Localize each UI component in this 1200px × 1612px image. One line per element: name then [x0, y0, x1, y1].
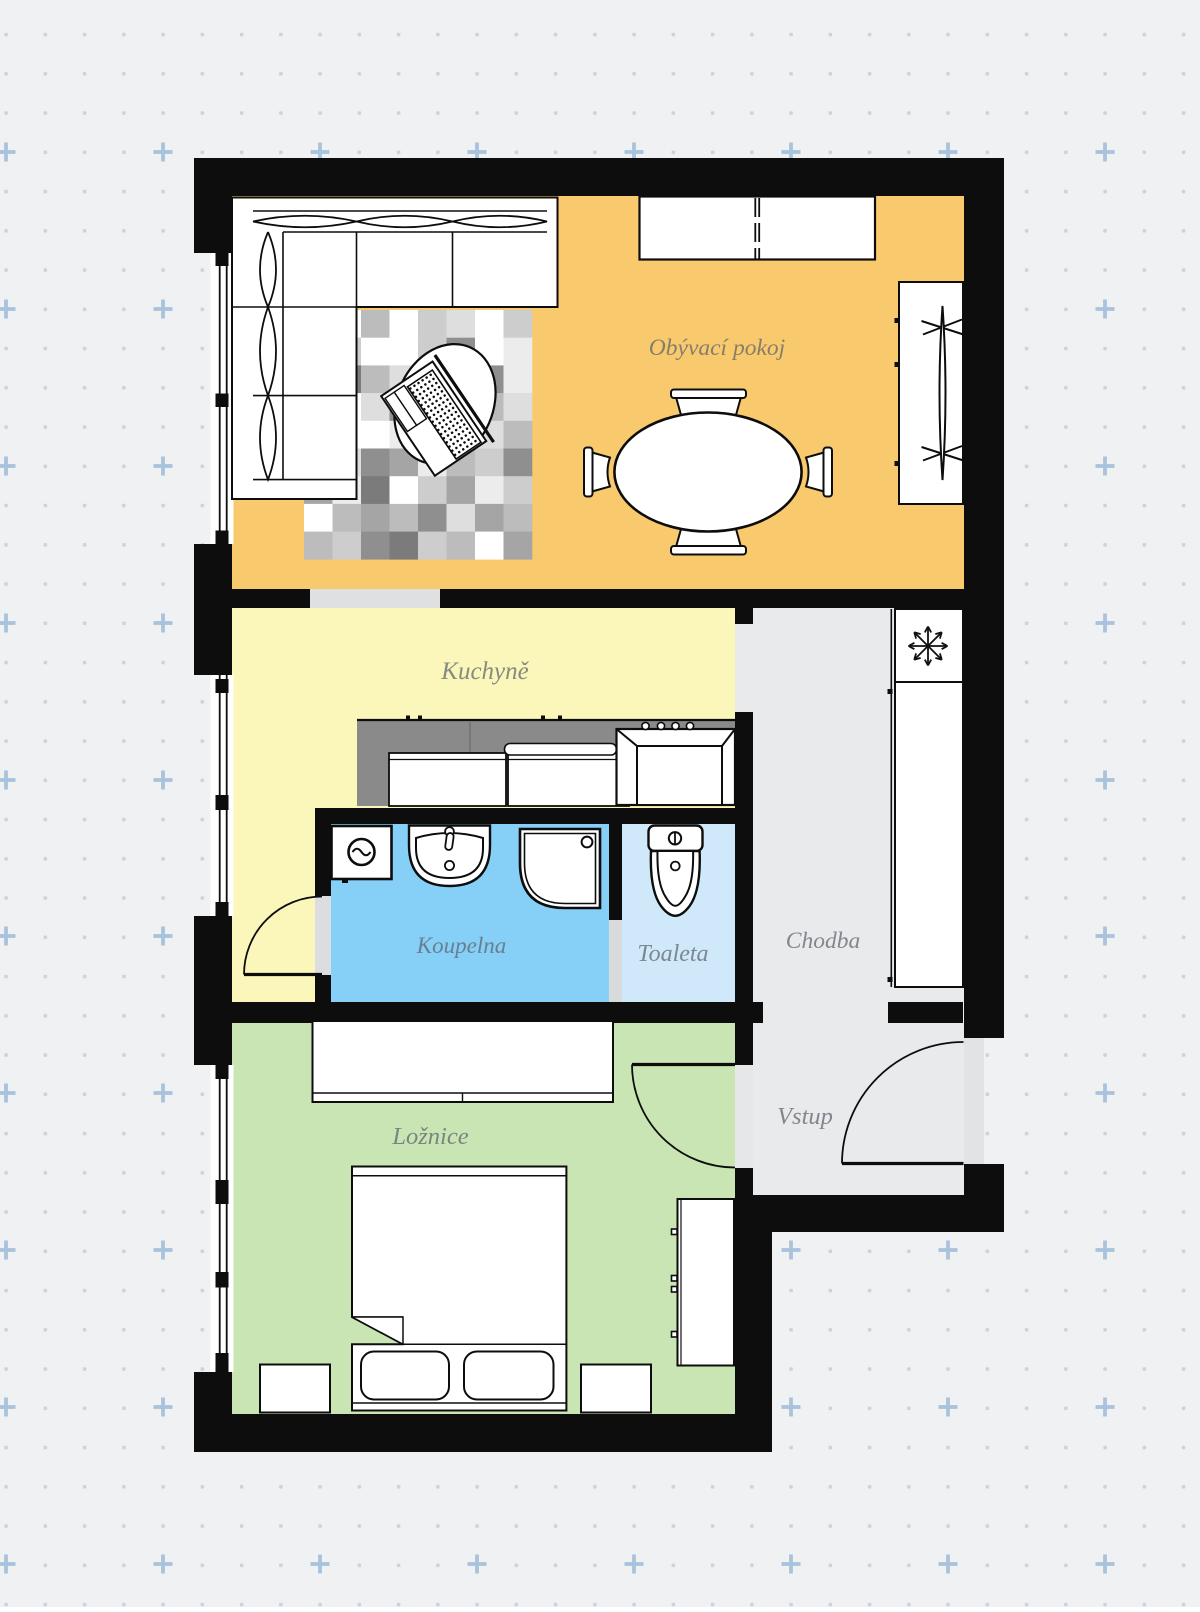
svg-text:Kuchyně: Kuchyně: [440, 658, 529, 685]
svg-text:Chodba: Chodba: [786, 928, 860, 954]
svg-text:Vstup: Vstup: [777, 1103, 833, 1130]
svg-text:Koupelna: Koupelna: [416, 933, 506, 958]
svg-text:Ložnice: Ložnice: [391, 1123, 468, 1150]
svg-text:Toaleta: Toaleta: [637, 941, 708, 967]
svg-text:Obývací pokoj: Obývací pokoj: [649, 335, 785, 361]
